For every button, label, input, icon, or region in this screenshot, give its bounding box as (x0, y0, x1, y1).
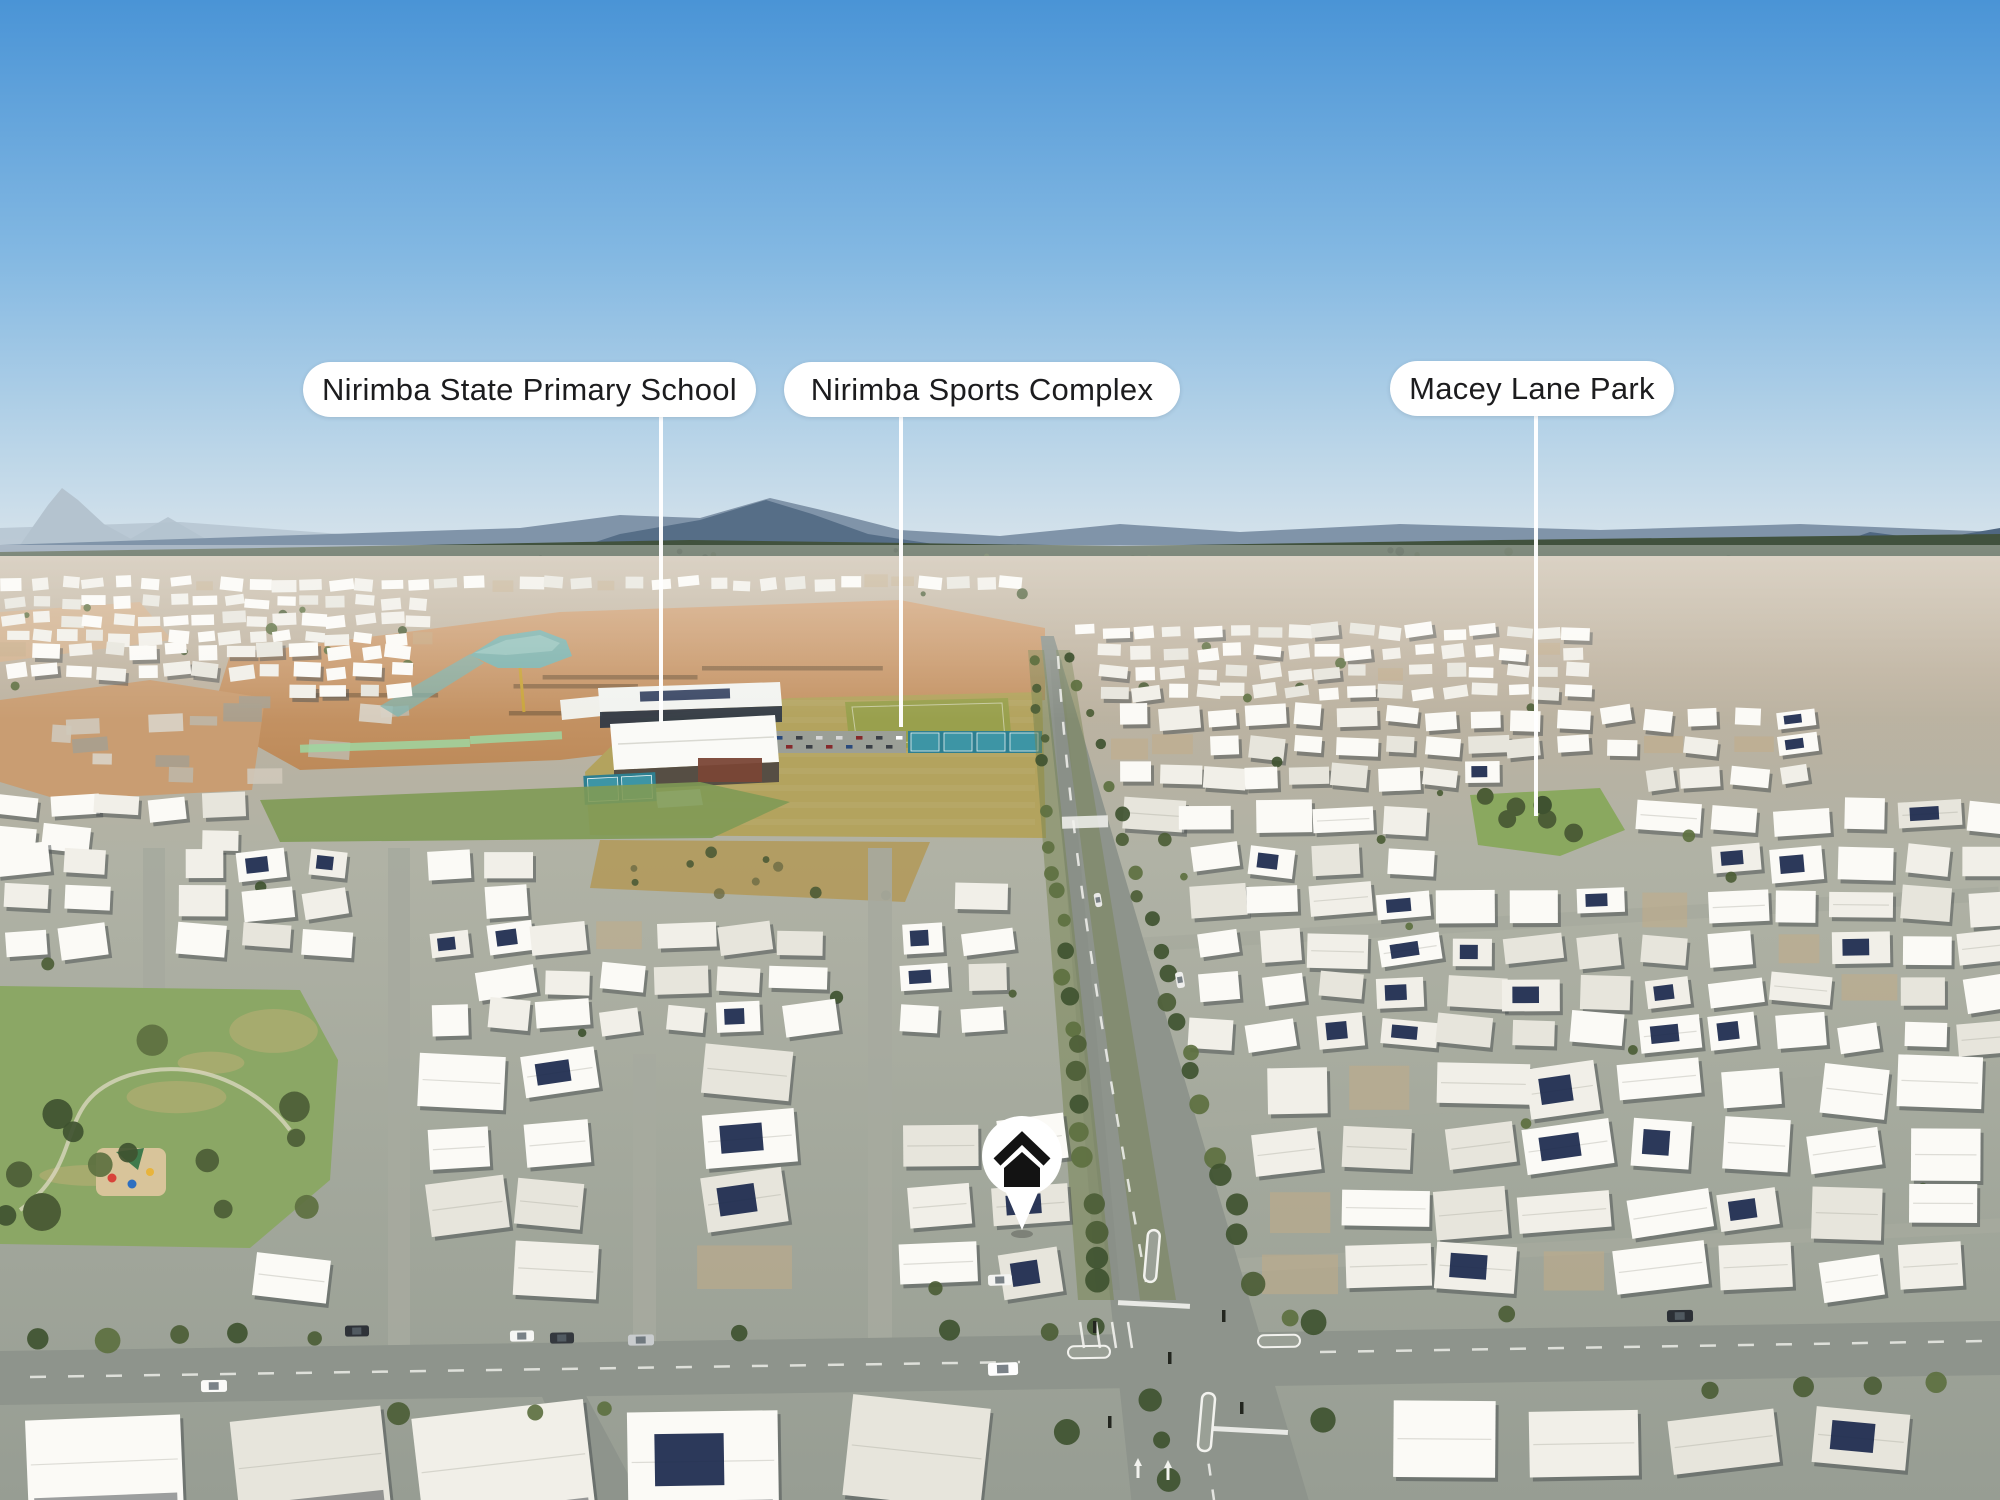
label-text-macey-lane-park: Macey Lane Park (1409, 371, 1655, 407)
leader-line-sports-complex (899, 414, 903, 727)
leader-line-macey-lane-park (1534, 413, 1538, 816)
label-pill-sports-complex: Nirimba Sports Complex (784, 362, 1180, 417)
aerial-overview-image: Nirimba State Primary School Nirimba Spo… (0, 0, 2000, 1500)
map-annotations: Nirimba State Primary School Nirimba Spo… (0, 0, 2000, 1500)
property-marker (981, 1111, 1063, 1233)
label-text-sports-complex: Nirimba Sports Complex (811, 372, 1154, 408)
label-text-primary-school: Nirimba State Primary School (322, 372, 737, 408)
leader-line-primary-school (659, 414, 663, 722)
label-pill-macey-lane-park: Macey Lane Park (1390, 361, 1674, 416)
label-pill-primary-school: Nirimba State Primary School (303, 362, 756, 417)
